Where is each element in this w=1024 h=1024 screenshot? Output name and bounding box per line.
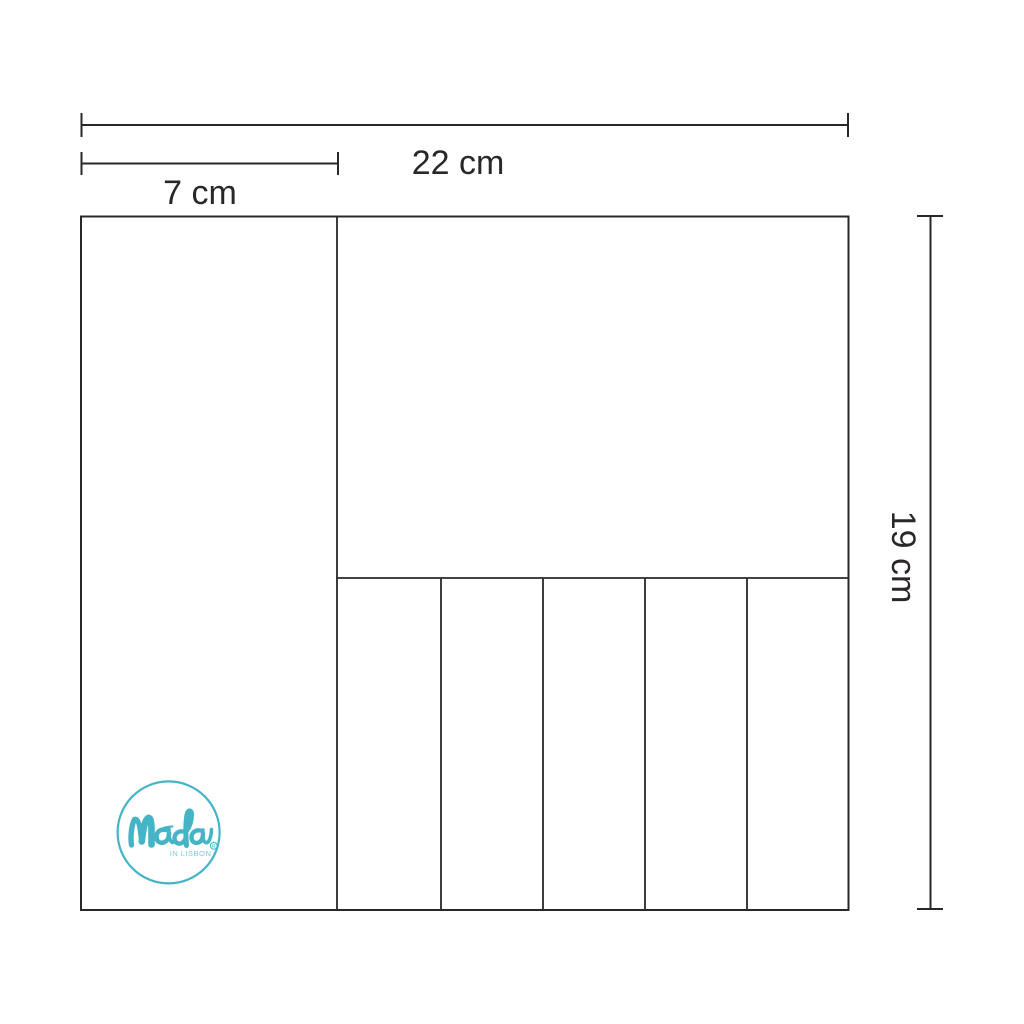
svg-text:R: R xyxy=(212,844,216,850)
svg-text:22 cm: 22 cm xyxy=(412,144,505,182)
svg-text:7 cm: 7 cm xyxy=(163,174,237,212)
svg-text:19 cm: 19 cm xyxy=(884,511,922,604)
svg-text:IN LISBON: IN LISBON xyxy=(170,849,212,858)
